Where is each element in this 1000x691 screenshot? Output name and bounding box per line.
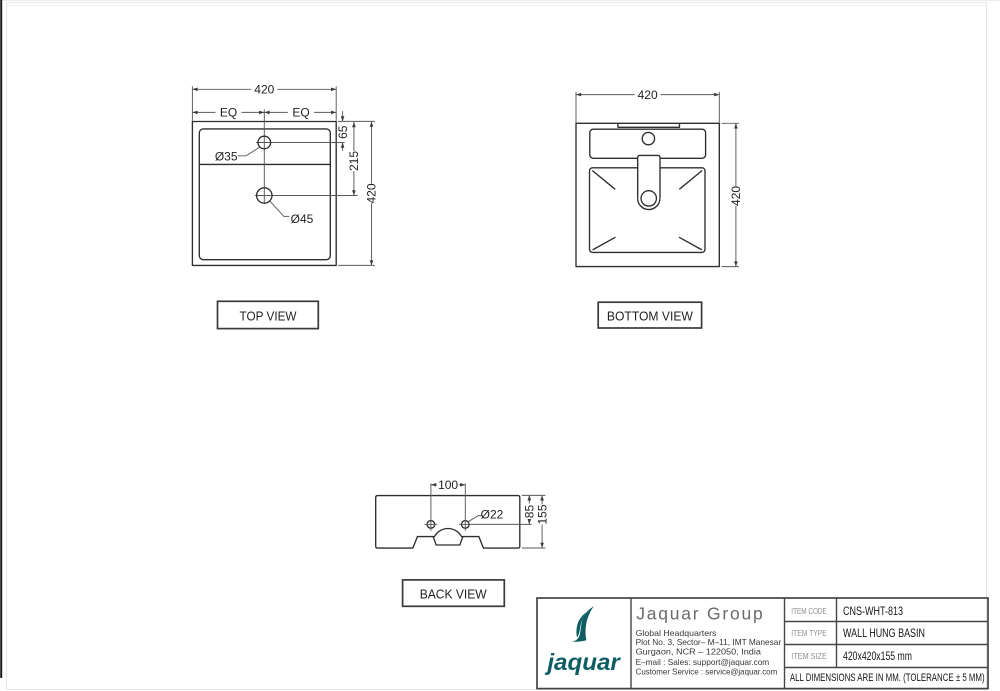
svg-text:420x420x155 mm: 420x420x155 mm (843, 649, 912, 663)
svg-text:Gurgaon, NCR – 122050, India: Gurgaon, NCR – 122050, India (636, 646, 762, 656)
svg-text:EQ: EQ (292, 106, 309, 120)
svg-text:100: 100 (438, 478, 458, 492)
svg-text:420: 420 (638, 88, 658, 102)
svg-text:jaquar: jaquar (544, 649, 621, 675)
svg-text:CNS-WHT-813: CNS-WHT-813 (843, 604, 903, 618)
svg-text:EQ: EQ (220, 106, 237, 120)
svg-text:65: 65 (336, 125, 350, 139)
svg-text:155: 155 (535, 504, 549, 524)
svg-text:215: 215 (347, 151, 361, 171)
svg-text:ALL DIMENSIONS ARE IN MM. (TOL: ALL DIMENSIONS ARE IN MM. (TOLERANCE ± 5… (790, 672, 985, 684)
svg-text:Ø22: Ø22 (481, 507, 504, 521)
svg-text:Ø35: Ø35 (215, 150, 238, 164)
svg-text:420: 420 (254, 83, 274, 97)
svg-text:ITEM SIZE: ITEM SIZE (791, 651, 827, 661)
svg-text:Jaquar Group: Jaquar Group (636, 604, 763, 624)
svg-text:420: 420 (729, 186, 743, 206)
svg-text:Ø45: Ø45 (291, 212, 314, 226)
svg-text:WALL HUNG BASIN: WALL HUNG BASIN (843, 626, 925, 640)
svg-text:420: 420 (365, 183, 379, 203)
svg-text:BOTTOM VIEW: BOTTOM VIEW (607, 308, 694, 323)
svg-text:ITEM TYPE: ITEM TYPE (791, 628, 827, 638)
svg-text:TOP VIEW: TOP VIEW (240, 309, 298, 324)
svg-text:BACK VIEW: BACK VIEW (420, 586, 488, 601)
svg-text:Customer Service : service@jaq: Customer Service : service@jaquar.com (636, 666, 778, 676)
svg-text:ITEM CODE: ITEM CODE (791, 606, 827, 616)
